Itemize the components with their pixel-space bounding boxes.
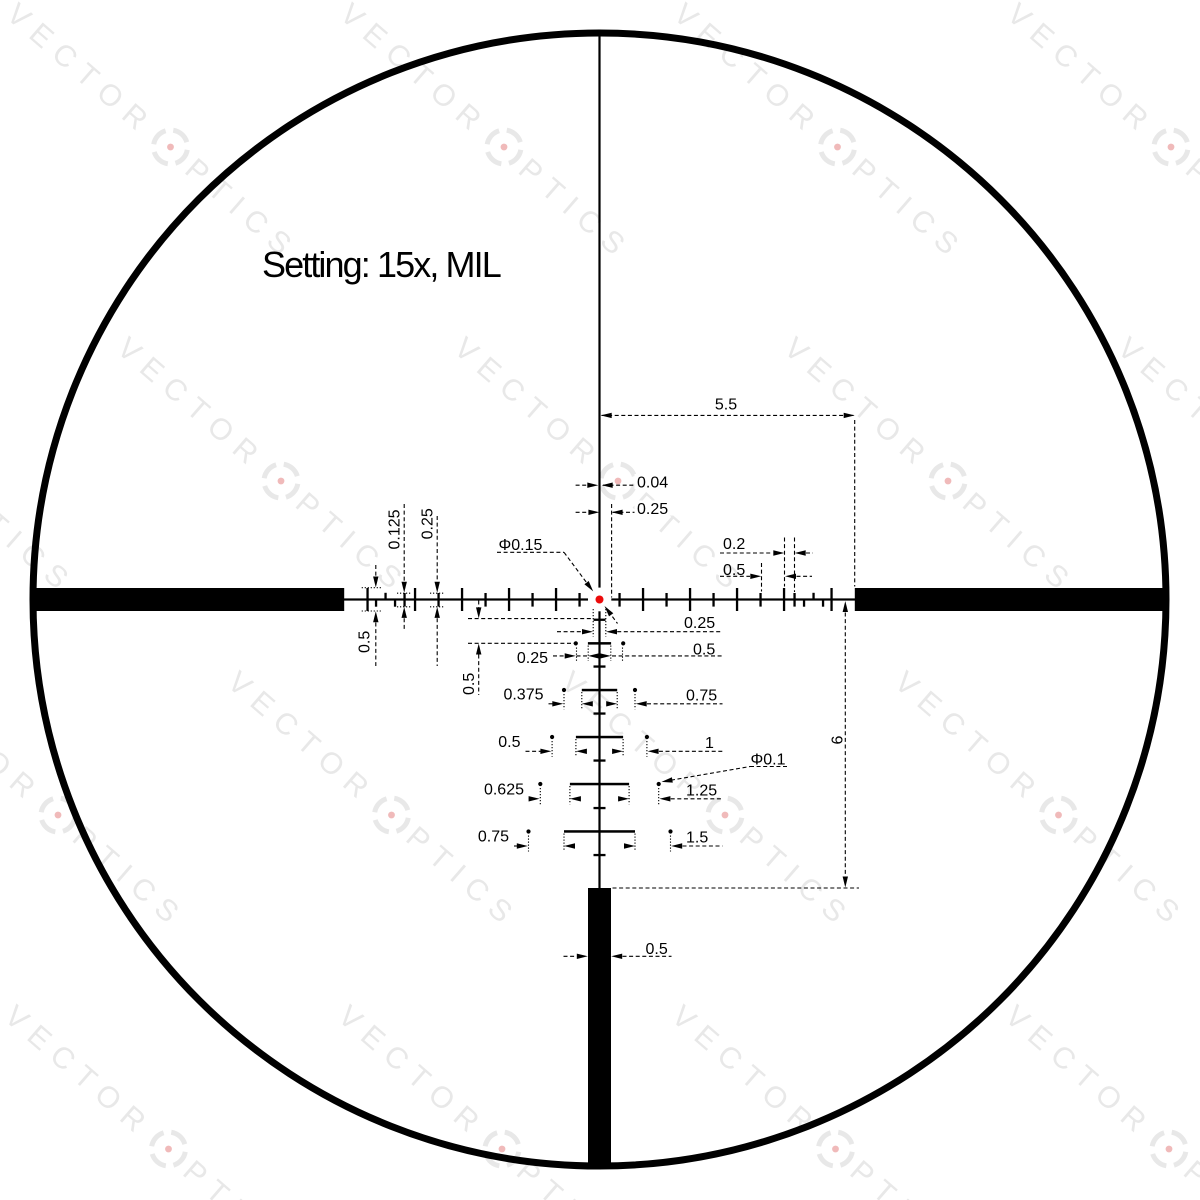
svg-text:6: 6 [830,736,847,745]
svg-text:0.25: 0.25 [420,508,437,539]
svg-text:0.5: 0.5 [646,941,668,958]
svg-text:0.125: 0.125 [387,509,404,549]
svg-text:0.5: 0.5 [693,642,715,659]
svg-text:0.375: 0.375 [503,686,543,703]
svg-text:0.2: 0.2 [723,536,745,553]
svg-text:Φ0.15: Φ0.15 [499,537,543,554]
svg-text:0.5: 0.5 [357,631,374,653]
svg-text:0.75: 0.75 [686,687,717,704]
svg-text:0.75: 0.75 [478,829,509,846]
svg-text:0.25: 0.25 [637,501,668,518]
svg-text:0.04: 0.04 [637,474,668,491]
svg-text:1.5: 1.5 [686,830,708,847]
svg-text:1: 1 [705,735,714,752]
svg-text:1.25: 1.25 [686,782,717,799]
svg-text:0.25: 0.25 [517,650,548,667]
svg-text:0.625: 0.625 [484,781,524,798]
svg-text:0.25: 0.25 [684,615,715,632]
svg-text:0.5: 0.5 [461,673,478,695]
svg-text:0.5: 0.5 [723,562,745,579]
svg-text:0.5: 0.5 [498,734,520,751]
svg-text:5.5: 5.5 [715,397,737,414]
svg-text:Setting: 15x, MIL: Setting: 15x, MIL [262,244,501,285]
